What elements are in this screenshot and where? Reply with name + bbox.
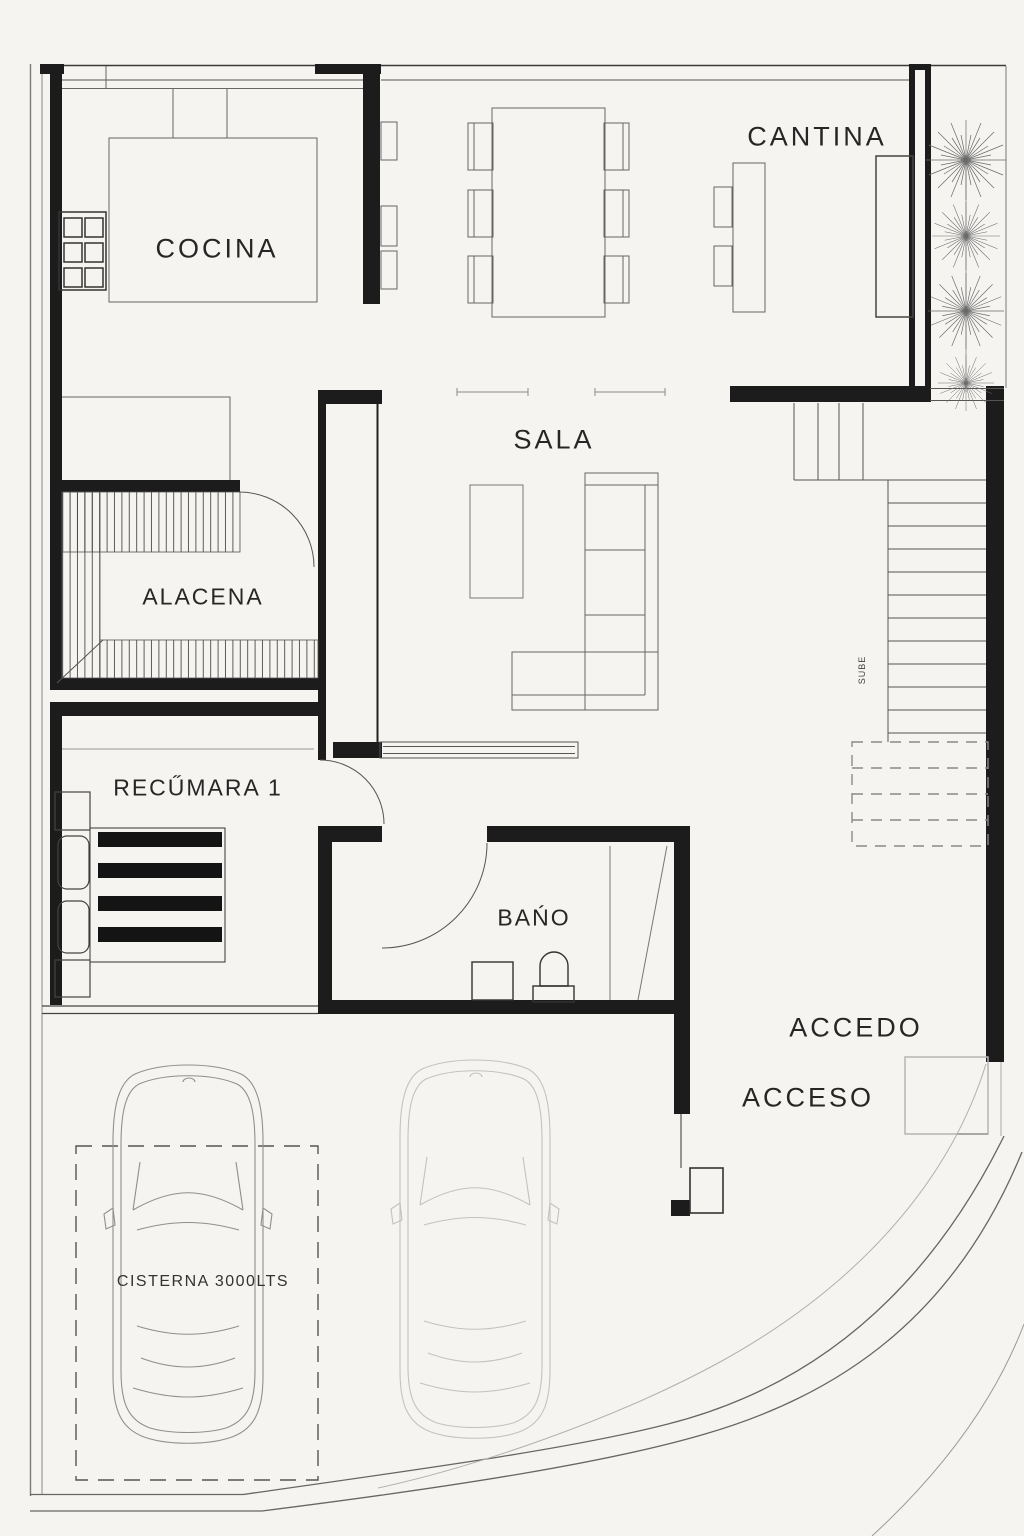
back-bar xyxy=(876,156,913,317)
wall-thin-edges xyxy=(378,389,1005,1169)
gate-area xyxy=(905,1057,988,1134)
bed xyxy=(55,792,225,997)
dining-table xyxy=(492,108,605,317)
stairs-hidden-run xyxy=(852,742,988,846)
dining-set xyxy=(468,108,629,317)
plant-icon xyxy=(926,120,1006,200)
entry-step xyxy=(690,1168,723,1213)
room-label-cantina: CANTINA xyxy=(747,122,887,153)
stairs xyxy=(794,403,988,846)
floor-plan: COCINA CANTINA SALA ALACENA RECŰMARA 1 B… xyxy=(0,0,1024,1536)
plants xyxy=(926,120,1006,411)
room-label-cocina: COCINA xyxy=(155,234,278,265)
alacena-door-arc xyxy=(239,492,314,567)
toilet-icon xyxy=(533,952,574,1002)
cisterna-outline xyxy=(76,1146,318,1480)
floor-plan-drawing xyxy=(0,0,1024,1536)
room-label-recamara1: RECŰMARA 1 xyxy=(113,775,283,802)
sofa xyxy=(512,473,658,710)
bar-counter xyxy=(733,163,765,312)
annotation-stairs-direction: SUBE xyxy=(857,656,867,685)
driveway xyxy=(378,1057,1001,1488)
cars xyxy=(104,1060,559,1443)
bedroom-door-arc xyxy=(320,760,384,824)
plant-icon xyxy=(928,273,1004,349)
sink-icon xyxy=(472,962,513,1000)
kitchen-fittings xyxy=(59,88,397,480)
car-top-view xyxy=(391,1060,559,1438)
bathroom-door-arc xyxy=(382,843,487,948)
room-label-bano: BAŃO xyxy=(497,905,570,932)
cantina-fittings xyxy=(714,156,913,317)
stove-icon xyxy=(59,212,106,290)
kitchen-stools xyxy=(381,122,397,289)
pillow xyxy=(58,901,89,953)
car-top-view xyxy=(104,1065,272,1443)
room-label-sala: SALA xyxy=(513,425,594,456)
plant-icon xyxy=(932,202,1000,270)
annotation-accedo: ACCEDO xyxy=(789,1013,923,1044)
plant-icon xyxy=(938,355,994,411)
annotation-cisterna: CISTERNA 3000LTS xyxy=(117,1273,289,1291)
room-label-alacena: ALACENA xyxy=(142,584,263,611)
coffee-table xyxy=(470,485,523,598)
ceiling-ticks xyxy=(457,388,665,396)
hall-console xyxy=(380,742,578,758)
pillow xyxy=(58,836,89,889)
shower-door-line xyxy=(638,846,667,1000)
kitchen-counter xyxy=(109,138,317,302)
annotation-acceso: ACCESO xyxy=(742,1083,874,1114)
